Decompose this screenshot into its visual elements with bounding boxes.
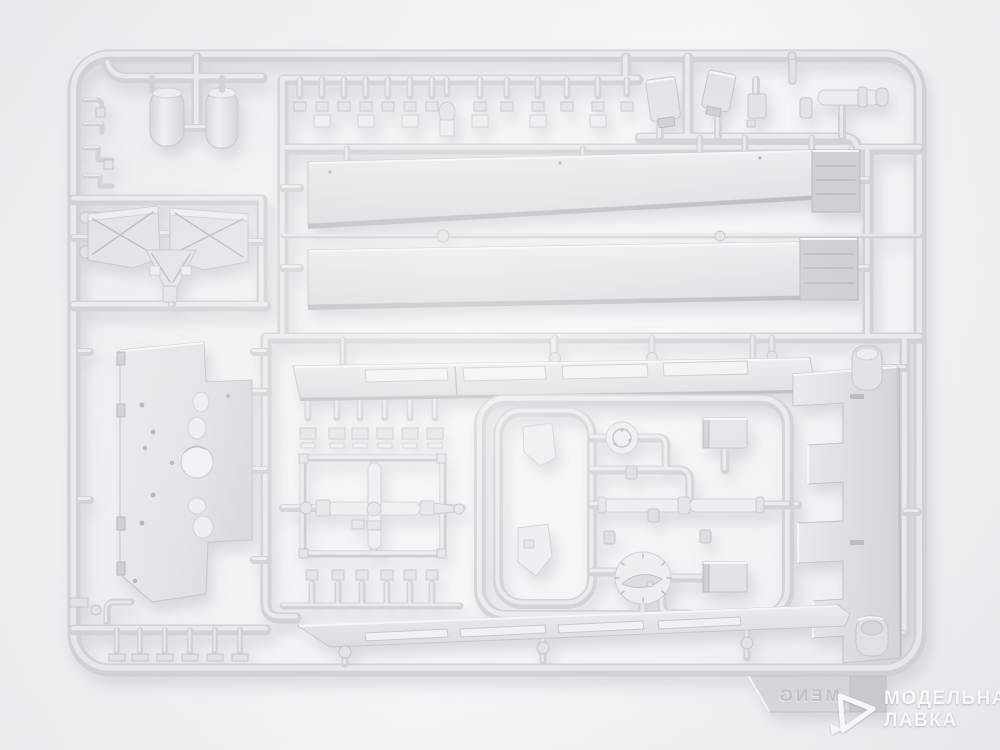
- part-long-panel-lower: [308, 238, 858, 310]
- part-long-panel-top: [308, 150, 860, 229]
- part-cylinder-rod: [690, 499, 760, 512]
- sprue-illustration: MENG MENG: [0, 0, 1000, 750]
- part-end-box-lower: [800, 238, 858, 300]
- part-stowage-boxes: [88, 206, 248, 302]
- product-photo: MENG MENG МОДЕЛЬНАЯ ЛАВКА: [0, 0, 1000, 750]
- svg-text:MENG: MENG: [777, 686, 840, 705]
- part-gun-barrel: [818, 90, 880, 105]
- part-hull-tub-assembly: [479, 398, 788, 616]
- part-box-upper: [703, 418, 747, 448]
- part-box-lower: [703, 562, 747, 592]
- brand-tab-dark-block: [850, 676, 886, 712]
- part-bracket-lower: [518, 524, 552, 576]
- part-end-box-top: [812, 150, 860, 212]
- brand-tab: MENG MENG: [748, 676, 886, 712]
- sprue-gate-ball: [715, 231, 725, 241]
- part-axle-frame: [299, 454, 464, 558]
- part-hull-panel-left: [117, 342, 252, 602]
- brand-embossed-text: MENG MENG: [776, 686, 840, 706]
- part-top-right-fittings: [645, 52, 888, 129]
- part-cylinder-rod: [602, 499, 682, 512]
- part-hub-round: [606, 422, 638, 454]
- part-bracket-upper: [523, 423, 556, 466]
- sprue-gate-ball: [437, 230, 449, 242]
